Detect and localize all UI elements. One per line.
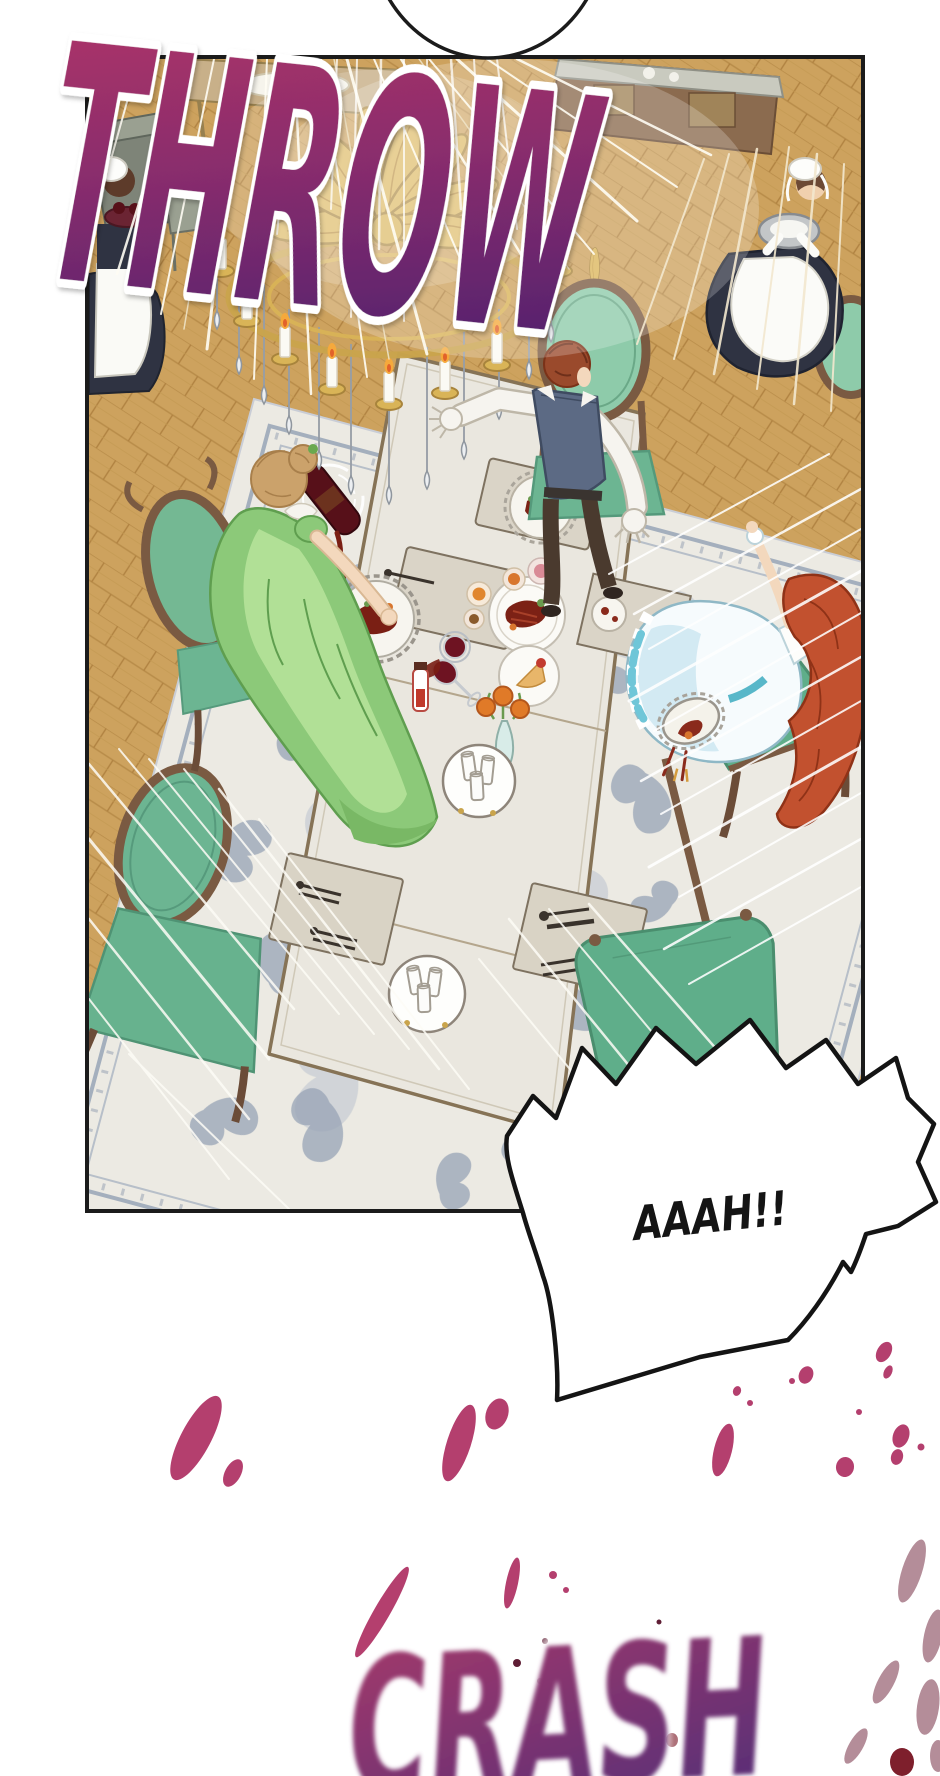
sfx-crash: CRASH CRASH: [343, 1597, 774, 1776]
main-panel: [85, 55, 865, 1213]
splatter-wine-blobs: [606, 1733, 914, 1776]
svg-text:CRASH: CRASH: [343, 1597, 774, 1776]
splatter-muted-pills: [840, 1537, 940, 1772]
top-speech-bubble: [370, 0, 606, 58]
splatter-drops: [161, 1339, 925, 1661]
sauce-bottle: [413, 662, 428, 711]
glass-tray-1: [443, 745, 515, 817]
dining-room-scene: [89, 59, 861, 1209]
svg-text:CRASH: CRASH: [343, 1597, 774, 1776]
splatter-dark-dots: [513, 1620, 662, 1685]
comic-page: THROW AAAH!!: [0, 0, 940, 1776]
